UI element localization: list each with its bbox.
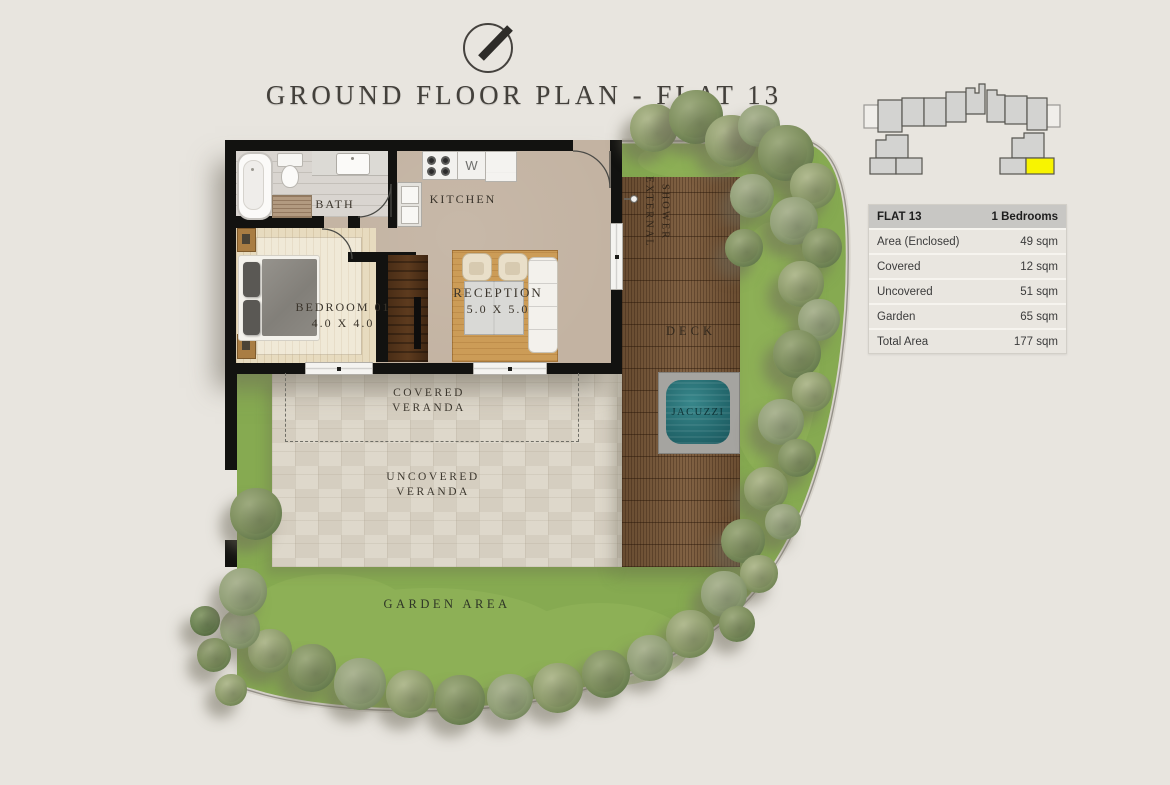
- armchair: [498, 253, 528, 281]
- tree: [533, 663, 583, 713]
- stove-burners: [422, 151, 458, 180]
- pillow: [243, 262, 260, 297]
- external-shower-label-line2: SHOWER: [660, 184, 671, 240]
- jacuzzi-water: JACUZZI: [666, 380, 730, 444]
- floor-plan-page: GROUND FLOOR PLAN - FLAT 13 FLAT 13 1 Be…: [0, 0, 1170, 785]
- tree: [190, 606, 220, 636]
- bathtub: [237, 152, 273, 220]
- tree: [288, 644, 336, 692]
- tree: [773, 330, 821, 378]
- garden-area-label: GARDEN AREA: [347, 597, 547, 612]
- bath-label: BATH: [285, 196, 385, 212]
- building-flat13: BATH W KITCHEN BEDROOM 014.0 X 4.0: [225, 140, 622, 374]
- nightstand: [237, 228, 256, 252]
- washer: W: [457, 151, 486, 180]
- bath-sink: [336, 153, 370, 175]
- uncovered-veranda-label: UNCOVEREDVERANDA: [333, 470, 533, 500]
- wall-bath-kitchen: [388, 151, 397, 228]
- tree: [765, 504, 801, 540]
- fridge: [485, 151, 517, 182]
- deck-area: EXTERNAL SHOWER DECK JACUZZI: [622, 177, 740, 567]
- veranda-area: COVEREDVERANDA UNCOVEREDVERANDA: [272, 374, 622, 567]
- garden-wall-segment: [225, 374, 237, 470]
- kitchen-label: KITCHEN: [403, 191, 523, 207]
- tree: [215, 674, 247, 706]
- tree: [435, 675, 485, 725]
- wall-stub: [348, 216, 360, 228]
- deck-label: DECK: [646, 324, 736, 339]
- tree: [725, 229, 763, 267]
- entrance-opening: [573, 140, 610, 152]
- tree: [219, 568, 267, 616]
- armchair: [462, 253, 492, 281]
- pillow: [243, 300, 260, 335]
- tree: [627, 635, 673, 681]
- jacuzzi: JACUZZI: [658, 372, 740, 454]
- tree: [778, 439, 816, 477]
- tree: [666, 610, 714, 658]
- tree: [197, 638, 231, 672]
- tree: [582, 650, 630, 698]
- toilet-bowl: [281, 165, 299, 188]
- bedroom-label: BEDROOM 014.0 X 4.0: [273, 299, 413, 331]
- window-deck: [610, 223, 623, 290]
- tree: [730, 174, 774, 218]
- tree: [719, 606, 755, 642]
- bath-counter: [312, 151, 388, 176]
- external-shower-label-line1: EXTERNAL: [644, 176, 655, 247]
- reception-label: RECEPTION5.0 X 5.0: [428, 285, 568, 317]
- tree: [230, 488, 282, 540]
- tree: [386, 670, 434, 718]
- washer-label: W: [465, 158, 477, 173]
- tv: [414, 297, 421, 349]
- garden-wall-segment: [225, 540, 237, 567]
- shower-head-icon: [624, 194, 638, 204]
- tree: [487, 674, 533, 720]
- jacuzzi-label: JACUZZI: [671, 407, 724, 418]
- covered-veranda-label: COVEREDVERANDA: [329, 386, 529, 416]
- tree: [334, 658, 386, 710]
